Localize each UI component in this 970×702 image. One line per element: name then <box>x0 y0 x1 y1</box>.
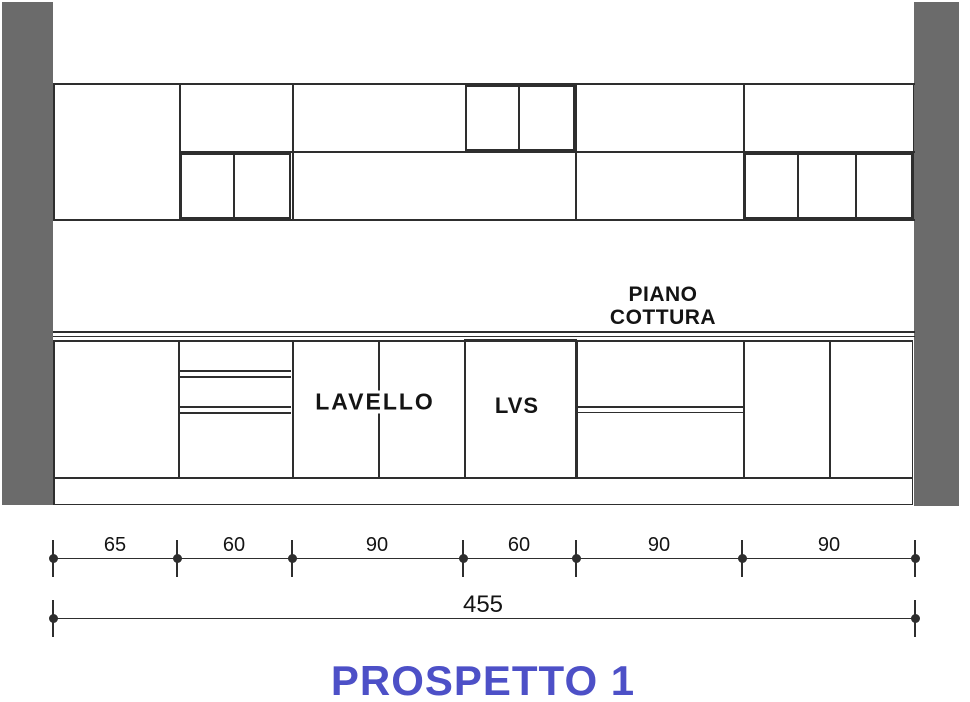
segment-dimension-value: 90 <box>648 534 670 557</box>
base-left-edge <box>53 340 55 479</box>
base-divider <box>178 340 180 479</box>
wall-cabinet-double-door <box>465 85 576 152</box>
hob-label-line1: PIANO <box>610 284 716 307</box>
sink-label: LAVELLO <box>312 391 438 414</box>
wall-cabinet-left-edge <box>53 83 55 220</box>
wall-cabinet-divider <box>292 83 294 220</box>
door-divider <box>797 155 799 218</box>
dishwasher-label: LVS <box>492 395 542 417</box>
plinth-right-edge <box>912 477 914 505</box>
base-divider <box>292 340 294 479</box>
drawing-title: PROSPETTO 1 <box>331 657 635 702</box>
door-divider <box>233 155 235 218</box>
plinth-left-edge <box>53 477 55 505</box>
countertop-bottom-line <box>53 336 915 338</box>
hob-label: PIANO COTTURA <box>610 284 716 329</box>
base-right-edge <box>912 340 914 479</box>
segment-dimension-value: 90 <box>818 534 840 557</box>
drawer-line <box>180 412 291 414</box>
kitchen-elevation-drawing: PIANO COTTURA LAVELLO LVS <box>0 0 970 702</box>
segment-dimension-value: 65 <box>104 534 126 557</box>
wall-cabinet-triple-door <box>744 153 913 220</box>
countertop-top-line <box>53 331 915 333</box>
drawer-line <box>180 406 291 408</box>
right-wall <box>914 2 959 506</box>
door-divider <box>855 155 857 218</box>
oven-split-line <box>577 406 743 408</box>
left-wall <box>2 2 53 505</box>
dimension-line <box>53 558 915 560</box>
drawer-line <box>180 370 291 372</box>
door-divider <box>518 87 520 150</box>
oven-split-line <box>577 412 743 414</box>
segment-dimension-value: 90 <box>366 534 388 557</box>
drawer-line <box>180 376 291 378</box>
hob-label-line2: COTTURA <box>610 307 716 330</box>
segment-dimension-value: 60 <box>508 534 530 557</box>
segment-dimension-value: 60 <box>223 534 245 557</box>
wall-cabinet-double-door <box>180 153 291 220</box>
plinth-bottom-line <box>53 504 913 506</box>
total-dimension-value: 455 <box>463 591 503 619</box>
base-divider <box>743 340 745 479</box>
wall-cabinets-bottom-line <box>53 219 915 221</box>
wall-cabinet-divider <box>575 83 577 220</box>
base-divider <box>829 340 831 479</box>
